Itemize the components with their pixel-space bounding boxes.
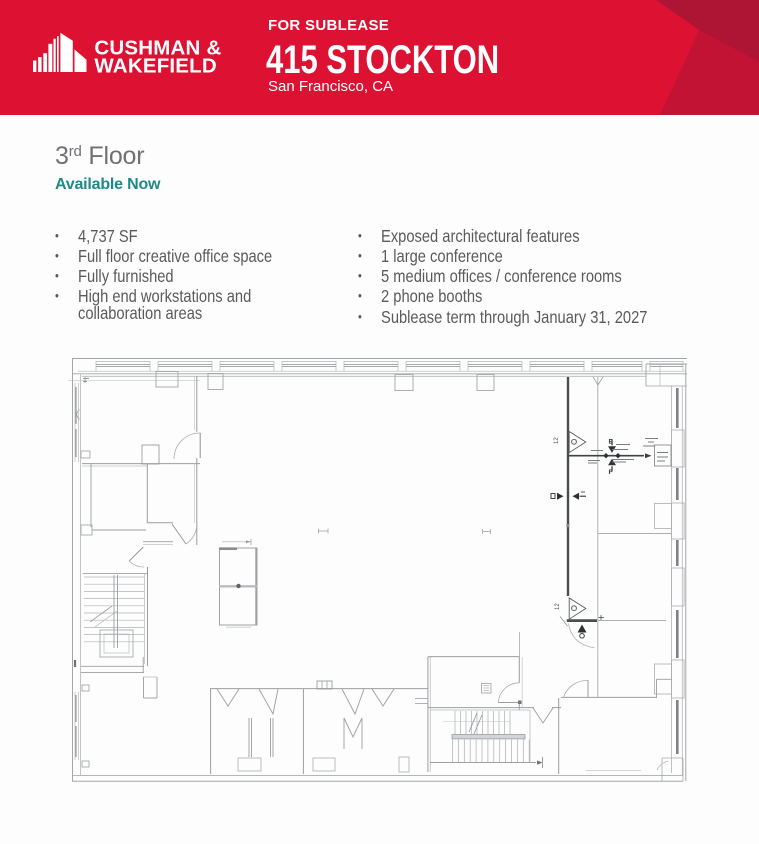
svg-text:12: 12 <box>554 437 560 444</box>
svg-text:E: E <box>609 439 614 446</box>
svg-text:F: F <box>609 469 613 476</box>
svg-text:12: 12 <box>555 603 561 610</box>
